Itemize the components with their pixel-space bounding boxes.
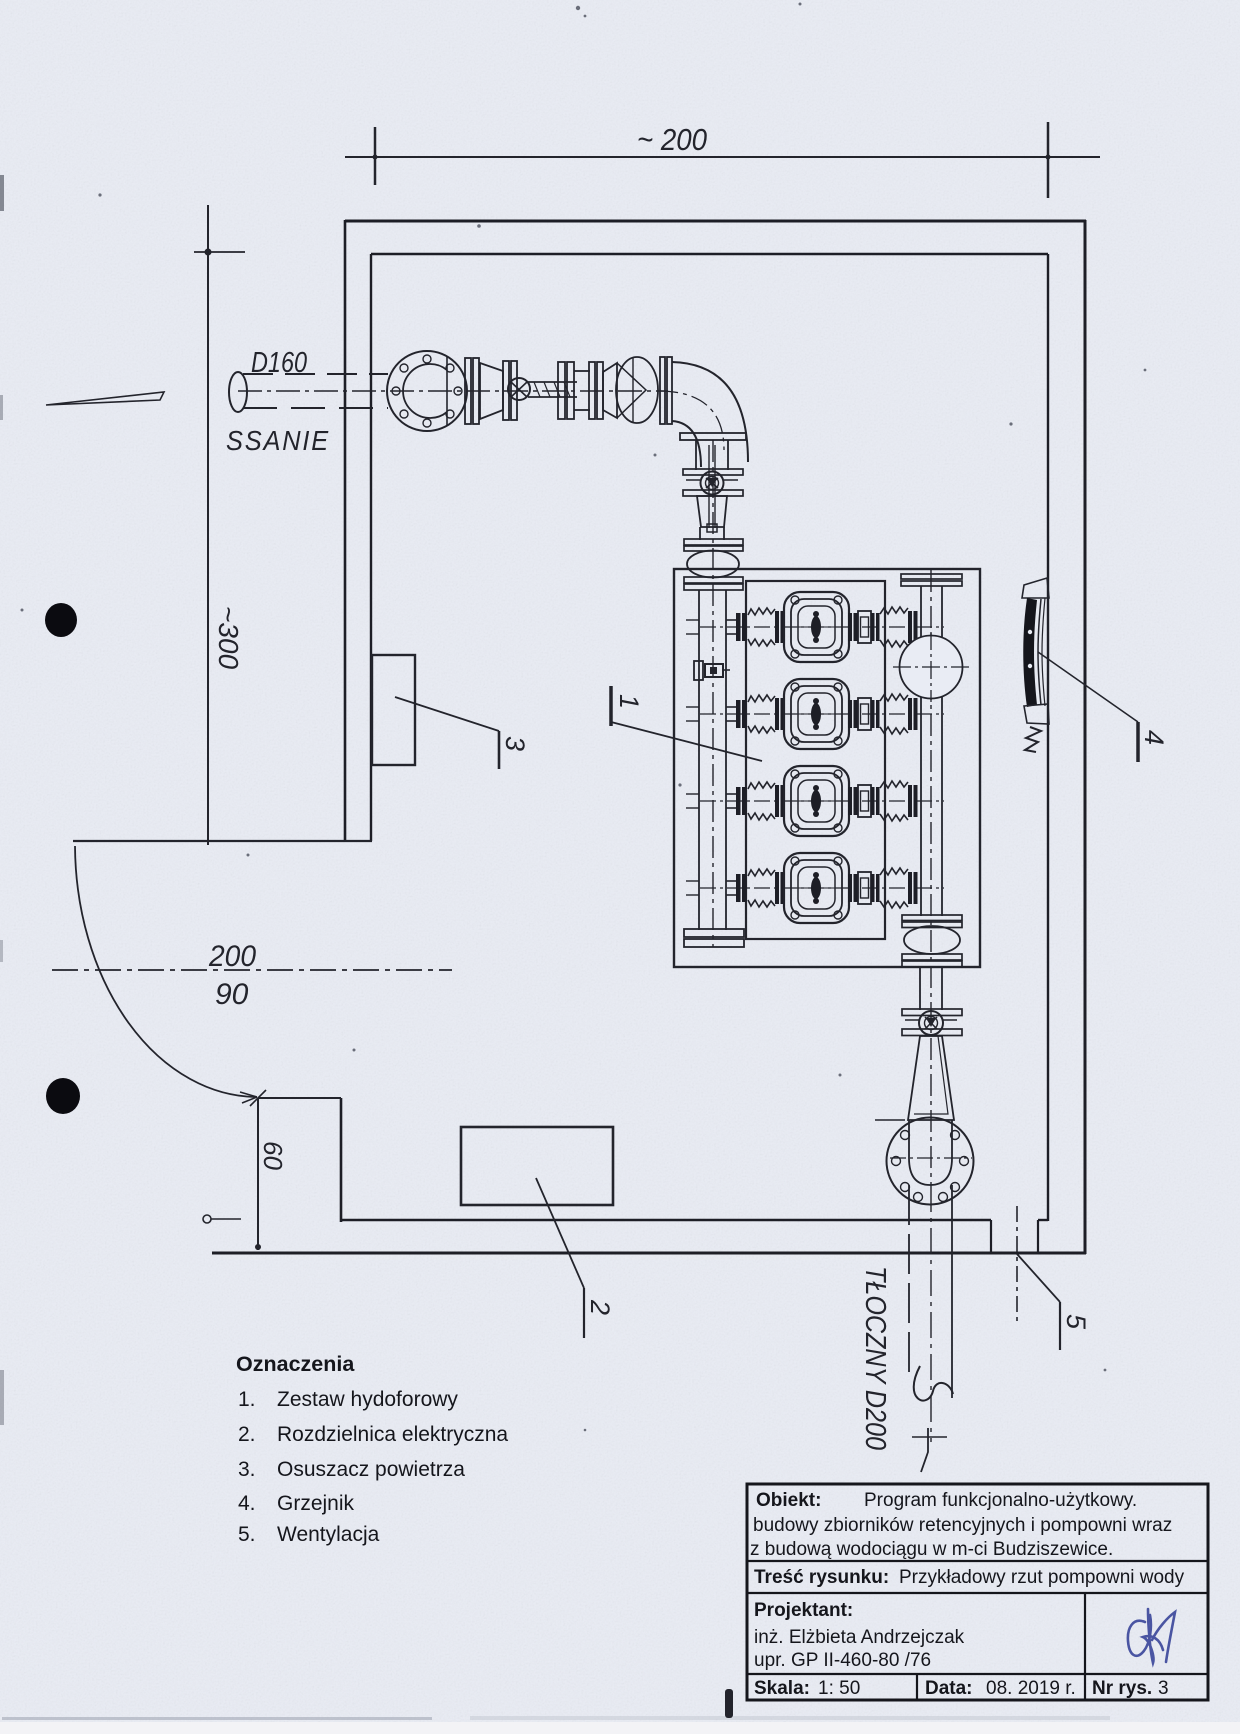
svg-text:200: 200 [208,940,256,973]
svg-text:5.: 5. [238,1523,256,1546]
svg-text:z budową wodociągu w m-ci Bu: z budową wodociągu w m-ci Budziszewice. [750,1539,1113,1560]
svg-text:1.: 1. [238,1388,256,1411]
svg-text:Zestaw hydoforowy: Zestaw hydoforowy [277,1388,458,1411]
svg-text:Oznaczenia: Oznaczenia [236,1352,355,1376]
svg-text:08. 2019 r.: 08. 2019 r. [986,1678,1076,1699]
svg-text:Rozdzielnica elektryczna: Rozdzielnica elektryczna [277,1423,508,1446]
svg-text:Nr rys.: Nr rys. [1092,1678,1152,1699]
svg-text:Wentylacja: Wentylacja [277,1523,380,1546]
svg-text:Osuszacz powietrza: Osuszacz powietrza [277,1458,465,1481]
svg-text:Data:: Data: [925,1678,973,1699]
svg-text:60: 60 [258,1141,288,1170]
svg-text:4.: 4. [238,1492,256,1515]
svg-text:2.: 2. [238,1423,256,1446]
svg-text:1: 1 [614,694,644,709]
svg-text:90: 90 [215,978,249,1011]
svg-text:budowy zbiorników retencyjnyc: budowy zbiorników retencyjnych i pompown… [753,1515,1172,1536]
svg-text:4: 4 [1139,730,1169,745]
svg-text:~300: ~300 [213,606,244,669]
svg-text:Przykładowy rzut pompowni wody: Przykładowy rzut pompowni wody [899,1567,1185,1588]
svg-text:Program funkcjonalno-użytkowy.: Program funkcjonalno-użytkowy. [864,1490,1137,1511]
svg-text:upr. GP II-460-80 /76: upr. GP II-460-80 /76 [754,1650,931,1671]
svg-text:5: 5 [1061,1314,1091,1330]
svg-text:~ 200: ~ 200 [637,122,707,157]
svg-text:D160: D160 [251,347,307,379]
svg-text:Obiekt:: Obiekt: [756,1490,821,1511]
svg-text:TŁOCZNY D200: TŁOCZNY D200 [859,1266,891,1450]
svg-text:1: 50: 1: 50 [818,1678,860,1699]
svg-text:Treść rysunku:: Treść rysunku: [754,1567,889,1588]
svg-text:Skala:: Skala: [754,1678,810,1699]
svg-text:3.: 3. [238,1458,256,1481]
svg-text:inż. Elżbieta Andrzejczak: inż. Elżbieta Andrzejczak [754,1627,965,1648]
svg-text:2: 2 [585,1299,615,1315]
svg-text:Grzejnik: Grzejnik [277,1492,355,1515]
svg-text:3: 3 [500,736,530,751]
svg-text:3: 3 [1158,1678,1169,1699]
svg-text:Projektant:: Projektant: [754,1600,853,1621]
svg-text:SSANIE: SSANIE [226,425,330,456]
